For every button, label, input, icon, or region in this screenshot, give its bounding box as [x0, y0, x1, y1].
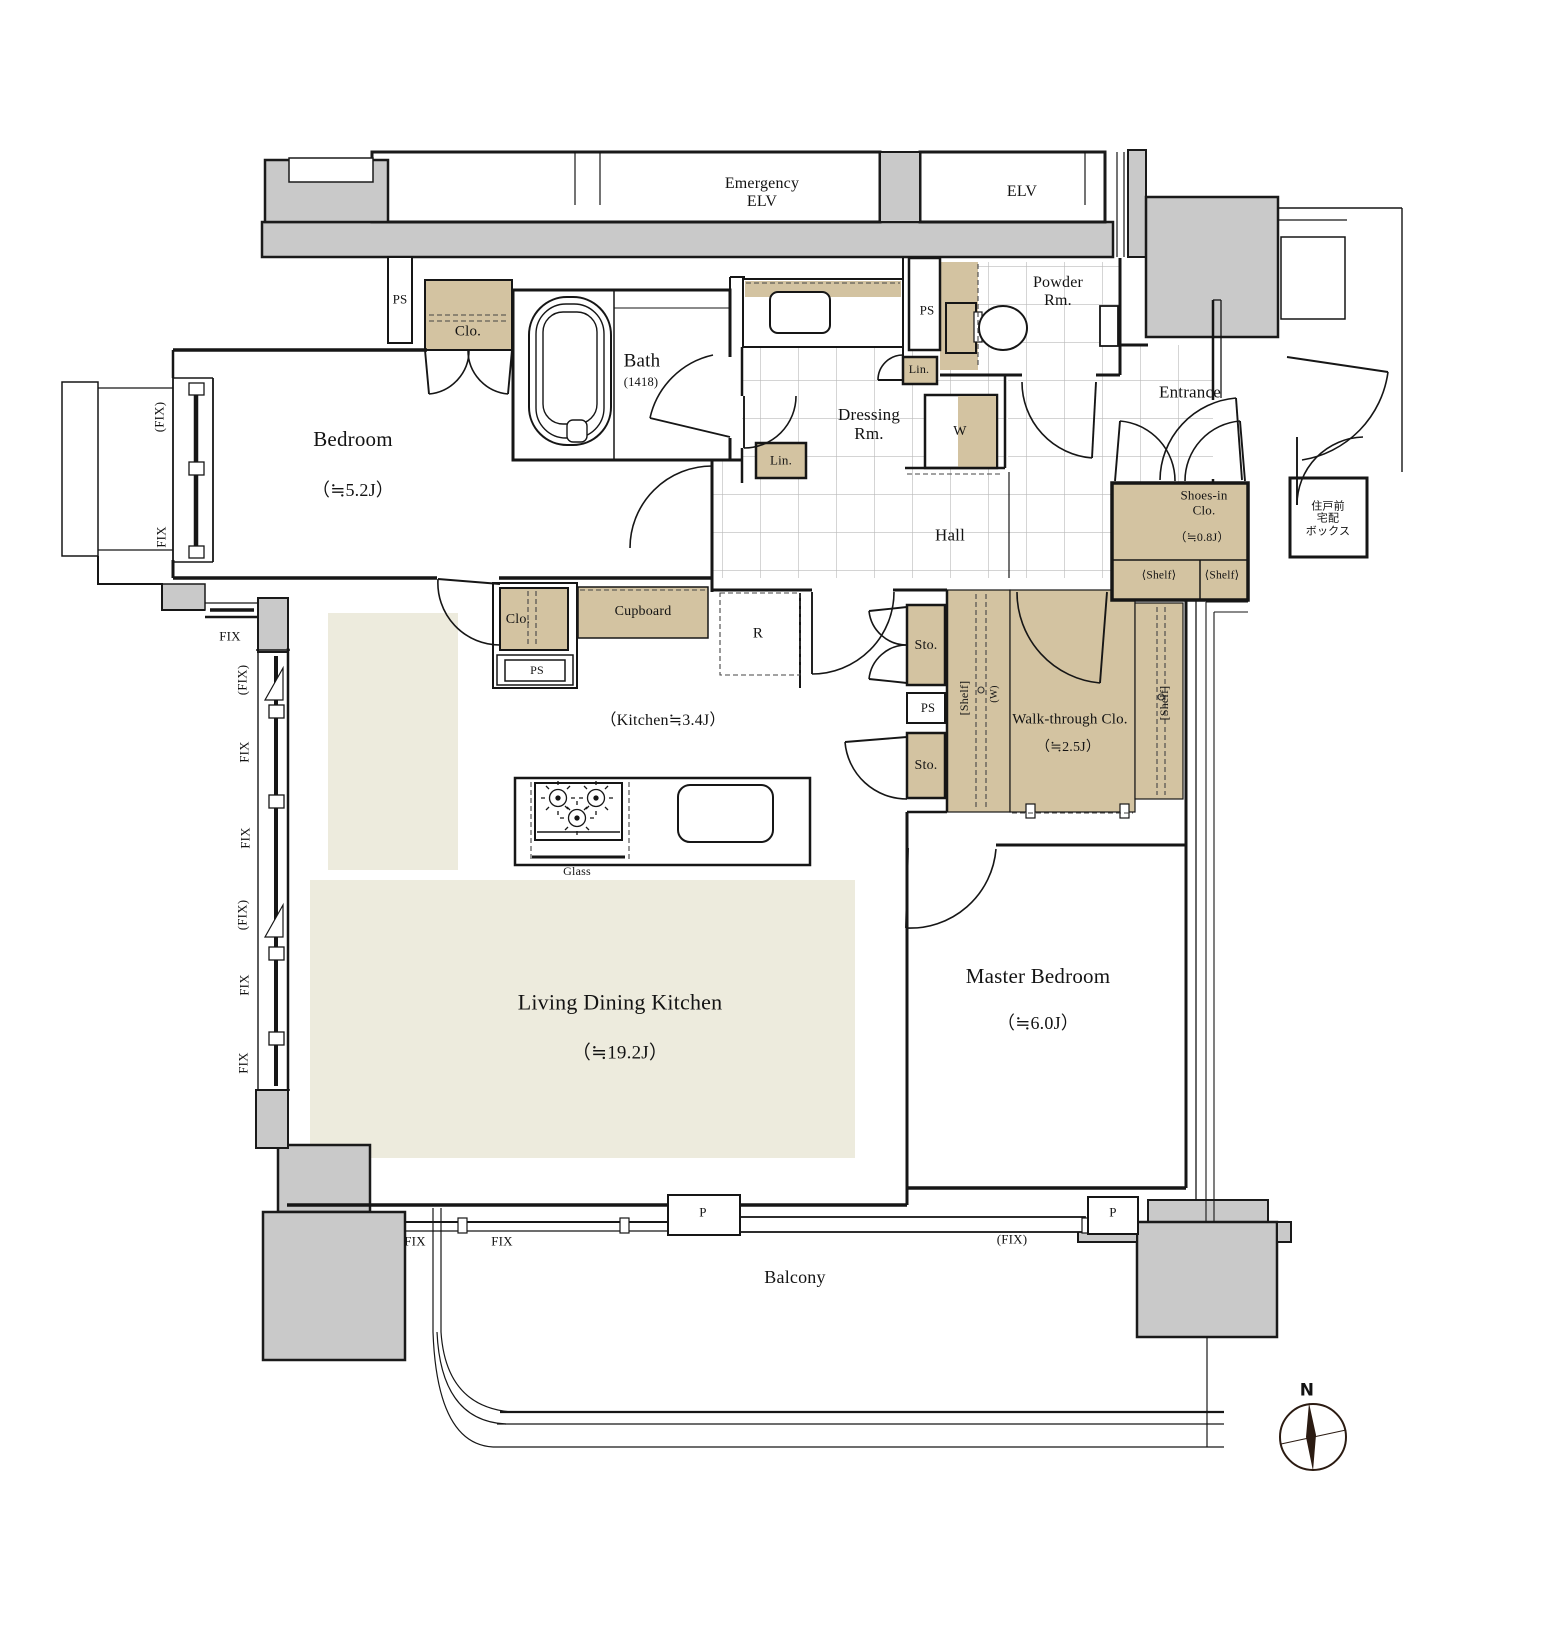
label-ps-2: PS [920, 304, 935, 319]
label-linen-2: Lin. [770, 454, 792, 469]
label-north: N [1300, 1381, 1314, 1400]
label-washer: W [953, 424, 966, 440]
label-storage-1: Sto. [915, 638, 938, 654]
label-fix-w5: FIX [238, 974, 253, 996]
label-wtc-shelf-left: [Shelf] [958, 681, 972, 716]
label-pipe-2: P [1109, 1206, 1116, 1221]
label-cupboard: Cupboard [615, 604, 672, 620]
label-fix-bay-2: FIX [155, 526, 170, 548]
label-kitchen-size: （Kitchen≒3.4J） [600, 712, 725, 730]
compass-needle [1306, 1403, 1316, 1471]
label-ldk-size: （≒19.2J） [572, 1042, 668, 1063]
label-master-size: （≒6.0J） [997, 1013, 1079, 1033]
label-powder-room: Powder Rm. [1033, 274, 1083, 310]
label-fix-s3: (FIX) [997, 1233, 1028, 1248]
emergency-elv-shaft [372, 152, 880, 222]
label-storage-2: Sto. [915, 758, 938, 774]
label-pipe-1: P [699, 1206, 706, 1221]
label-hall: Hall [935, 525, 965, 544]
label-elv: ELV [1007, 183, 1037, 201]
powder-basin [1100, 306, 1118, 346]
vanity-sink [770, 292, 830, 333]
label-balcony: Balcony [764, 1267, 825, 1287]
label-fix-h: FIX [219, 630, 241, 645]
label-fix-w1: (FIX) [236, 665, 251, 696]
label-fix-w4: (FIX) [236, 900, 251, 931]
label-emergency-elv: Emergency ELV [725, 175, 799, 211]
label-wtc-washer: (W) [989, 685, 1001, 703]
label-shoes-closet-size: （≒0.8J） [1174, 531, 1229, 545]
label-dressing-room: Dressing Rm. [838, 405, 900, 443]
label-fix-w6: FIX [237, 1052, 252, 1074]
label-fix-w2: FIX [238, 741, 253, 763]
label-refrigerator: R [753, 626, 763, 643]
label-ldk-name: Living Dining Kitchen [518, 991, 723, 1016]
label-fix-bay-1: (FIX) [153, 402, 168, 433]
label-delivery-box: 住戸前 宅配 ボックス [1306, 500, 1350, 537]
toilet-tank [946, 303, 976, 353]
kitchen-island [515, 778, 810, 865]
label-fix-s1: FIX [404, 1235, 426, 1250]
label-shoes-closet-name: Shoes-in Clo. [1180, 488, 1227, 517]
label-bedroom-closet: Clo. [455, 324, 481, 341]
label-entrance: Entrance [1159, 382, 1221, 401]
wtc-floor [1010, 590, 1135, 812]
label-ps-3: PS [530, 664, 544, 678]
label-ps-4: PS [921, 701, 935, 715]
label-wtc-name: Walk-through Clo. [1012, 712, 1128, 729]
label-bath-name: Bath [624, 350, 661, 371]
label-bedroom-name: Bedroom [313, 428, 393, 452]
bath-room [513, 290, 730, 460]
label-master-name: Master Bedroom [966, 965, 1111, 989]
window-bay [62, 382, 98, 556]
balcony-windows [405, 1195, 1224, 1447]
label-shelf-1: ⟨Shelf⟩ [1142, 570, 1177, 583]
kitchen-sink [678, 785, 773, 842]
label-wtc-size: （≒2.5J） [1036, 740, 1100, 756]
label-bath-size: (1418) [624, 375, 659, 389]
floor-plan: Emergency ELV ELV PS Clo. Bath (1418) Po… [0, 0, 1543, 1630]
label-fix-s2: FIX [491, 1235, 513, 1250]
compass [1280, 1403, 1346, 1471]
label-bedroom-size: （≒5.2J） [312, 480, 394, 500]
label-kitchen-closet: Clo. [506, 612, 531, 628]
ldk-flooring [310, 613, 855, 1158]
label-wtc-shelf-right: [Shelf] [1158, 686, 1172, 721]
label-shelf-2: ⟨Shelf⟩ [1205, 570, 1240, 583]
label-fix-w3: FIX [239, 827, 254, 849]
label-linen-1: Lin. [909, 363, 929, 377]
label-ps-1: PS [393, 293, 408, 308]
label-glass: Glass [563, 865, 591, 879]
toilet-bowl [979, 306, 1027, 350]
